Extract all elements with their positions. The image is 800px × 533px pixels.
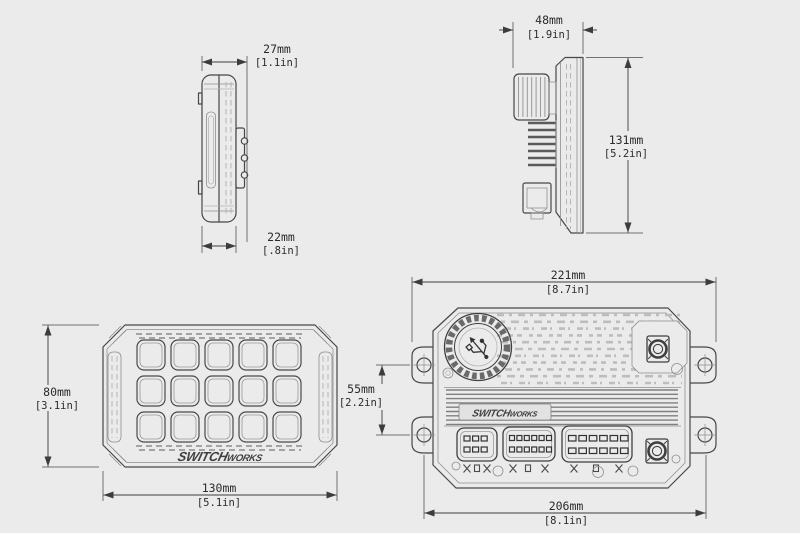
dim-text-in: [8.1in] — [544, 515, 588, 527]
heatsink-fins-side — [528, 123, 556, 165]
dim-controller-height: 131mm [5.2in] — [586, 58, 648, 234]
pin-connector-shell — [457, 428, 497, 461]
pin-connector — [562, 426, 632, 462]
logo-part2: WORKS — [509, 410, 539, 419]
pin-connectors — [457, 426, 632, 462]
dim-keypad-width: 130mm [5.1in] — [103, 471, 337, 509]
knob-shoulder — [549, 82, 556, 114]
dim-text-mm: 55mm — [347, 382, 375, 396]
logo-part2: WORKS — [226, 453, 264, 464]
dim-keypad-height: 80mm [3.1in] — [35, 325, 99, 467]
mount-clip — [199, 93, 203, 104]
connector-side-foot — [531, 213, 543, 219]
keypad-buttons — [137, 340, 301, 442]
technical-drawing-page: 27mm [1.1in] 22mm [.8in] 48mm [1.9i — [0, 0, 800, 533]
dim-controller-mount-v: 55mm [2.2in] — [339, 365, 410, 435]
antenna-connector-bottom — [646, 439, 668, 463]
dim-keypad-body-depth: 22mm [.8in] — [202, 226, 300, 257]
dim-text-in: [1.9in] — [527, 29, 571, 41]
dim-text-in: [8.7in] — [546, 284, 590, 296]
pin-connector — [457, 428, 497, 461]
keypad-front-view: SWITCHWORKS — [103, 325, 337, 467]
antenna-connector-top — [632, 321, 687, 375]
dim-text-mm: 22mm — [267, 230, 295, 244]
pin-connector-shell — [503, 427, 555, 461]
keypad-side-view — [199, 75, 248, 222]
logo-part1: SWITCH — [176, 449, 230, 464]
dim-text-in: [2.2in] — [339, 397, 383, 409]
usb-port-knob — [445, 314, 512, 381]
svg-text:SWITCHWORKS: SWITCHWORKS — [471, 409, 539, 420]
logo-part1: SWITCH — [471, 409, 512, 420]
technical-drawing: 27mm [1.1in] 22mm [.8in] 48mm [1.9i — [0, 0, 800, 533]
controller-front-view: SWITCHWORKS — [412, 308, 716, 488]
dim-text-in: [5.1in] — [197, 497, 241, 509]
dim-text-in: [5.2in] — [604, 148, 648, 160]
controller-side-view — [514, 58, 583, 234]
dim-text-mm: 131mm — [609, 133, 644, 147]
dim-text-mm: 206mm — [549, 499, 584, 513]
dim-text-in: [.8in] — [262, 245, 300, 257]
pin-connector — [503, 427, 555, 461]
dim-text-mm: 221mm — [551, 268, 586, 282]
dim-text-mm: 80mm — [43, 385, 71, 399]
dim-text-in: [1.1in] — [255, 57, 299, 69]
dim-text-mm: 27mm — [263, 42, 291, 56]
dim-text-mm: 48mm — [535, 13, 563, 27]
switchworks-logo-controller: SWITCHWORKS — [471, 409, 539, 420]
controller-side-plate — [556, 58, 583, 234]
pin-connector-shell — [562, 426, 632, 462]
dim-text-mm: 130mm — [202, 481, 237, 495]
dim-text-in: [3.1in] — [35, 400, 79, 412]
knob-side-ribs — [519, 77, 545, 117]
mount-clip — [199, 181, 203, 194]
